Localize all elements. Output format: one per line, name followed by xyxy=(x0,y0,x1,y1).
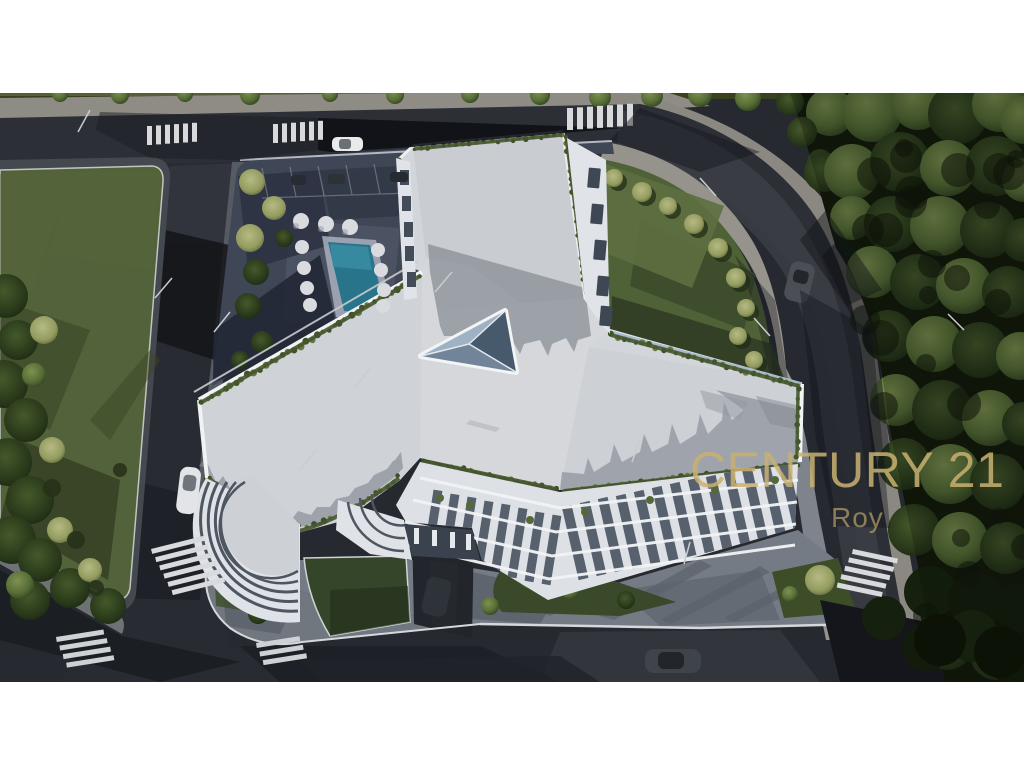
svg-text:CENTURY 21: CENTURY 21 xyxy=(690,442,1004,498)
svg-text:Roy: Roy xyxy=(831,502,884,533)
